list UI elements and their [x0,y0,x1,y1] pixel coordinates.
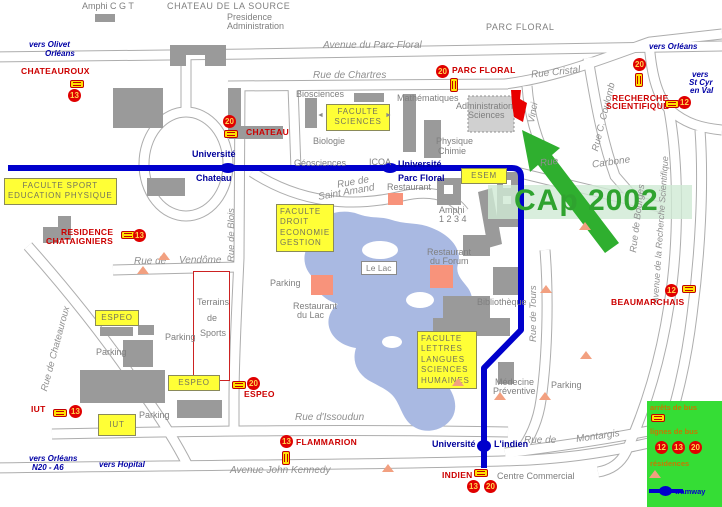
tram-stop-parc-floral-label-bottom: Parc Floral [398,174,445,183]
faculte-lettres-box: FACULTE LETTRES LANGUES SCIENCES HUMAINE… [417,331,477,389]
arrow-left-icon: ◄ [317,112,324,119]
bus-stop-icon [665,100,679,108]
direction-orleans-sw-1: vers Orléans [29,455,77,463]
bus-stop-icon [682,285,696,293]
faculte-droit-line1: FACULTE [280,207,321,216]
bus-stop-indien-label: INDIEN [442,471,473,480]
faculte-lettres-line1: FACULTE [421,334,462,343]
biologie-label: Biologie [313,137,345,146]
direction-stcyr-3: en Val [690,87,713,95]
icoa-label: ICOA [369,158,391,167]
bus-stop-icon [232,381,246,389]
terrains-label-2: de [207,314,217,323]
administration-label: Administration [227,22,284,31]
terrains-label-3: Sports [200,329,226,338]
residence-triangle-icon [540,285,552,293]
street-rue-issoudun: Rue d'Issoudun [295,413,364,423]
bus-line-badge: 13 [69,405,82,418]
bus-stop-chateauroux-label: CHATEAUROUX [21,67,90,76]
le-lac-label: Le Lac [361,261,397,275]
tram-stop-indien-label-right: L'indien [494,440,528,449]
esem-box: ESEM [461,168,507,184]
residence-triangle-icon [539,392,551,400]
bus-stop-recherche-label-2: SCIENTIFIQUE [606,102,669,111]
residence-triangle-icon [158,252,170,260]
bus-stop-chateau-label: CHATEAU [246,128,289,137]
faculte-droit-line2: DROIT [280,217,309,226]
parking-label: Parking [96,348,127,357]
bus-line-badge: 12 [655,441,668,454]
faculte-droit-line3: ECONOMIE [280,228,330,237]
bus-stop-beaumarchais-label: BEAUMARCHAIS [611,298,685,307]
bus-line-badge: 13 [672,441,685,454]
bus-line-badge: 13 [133,229,146,242]
parking-label: Parking [165,333,196,342]
espeo-label: ESPEO [101,313,133,322]
faculte-sciences-box: FACULTE SCIENCES [326,104,390,131]
terrains-de-sports-area [194,272,230,381]
bus-stop-icon [474,469,488,477]
residence-triangle-icon [579,222,591,230]
bus-stop-icon [282,451,290,465]
street-rue-de-blois: Rue de Blois [227,208,237,262]
residence-triangle-icon [494,392,506,400]
tram-stop-icon [659,486,672,496]
direction-orleans-ne: vers Orléans [649,43,697,51]
bus-stop-parc-floral-label: PARC FLORAL [452,66,516,75]
espeo-box-1: ESPEO [95,310,139,326]
iut-label: IUT [109,420,124,429]
faculte-droit-box: FACULTE DROIT ECONOMIE GESTION [276,204,334,252]
residence-triangle-icon [382,464,394,472]
bus-line-badge: 13 [68,89,81,102]
street-rue-de-tours: Rue de Tours [529,285,539,342]
physique-label: Physique [436,137,473,146]
legend-tram-label: tramway [675,487,705,496]
faculte-sciences-line1: FACULTE [337,107,378,116]
arrow-right-icon: ► [385,112,392,119]
admin-sciences-label-2: Sciences [468,111,505,120]
street-avenue-kennedy: Avenue John Kennedy [230,466,330,476]
parking-label: Parking [139,411,170,420]
faculte-sport-box: FACULTE SPORT EDUCATION PHYSIQUE [4,178,117,205]
bus-stop-icon [651,414,665,422]
direction-hopital: vers Hopital [99,461,145,469]
bus-stop-iut-label: IUT [31,405,46,414]
espeo-box-2: ESPEO [168,375,220,391]
esem-label: ESEM [471,171,497,180]
chateau-source-label: CHATEAU DE LA SOURCE [167,2,290,11]
bus-stop-icon [224,130,238,138]
residence-triangle-icon [137,266,149,274]
bus-line-badge: 13 [280,435,293,448]
bus-line-badge: 20 [689,441,702,454]
restaurant-lac-label-2: du Lac [297,311,324,320]
faculte-lettres-line3: LANGUES [421,355,465,364]
centre-commercial-label: Centre Commercial [497,472,575,481]
terrains-label-1: Terrains [197,298,229,307]
map-legend: arrêts de bus lignes de bus 12 13 20 rés… [647,401,722,507]
biosciences-label: Biosciences [296,90,344,99]
amphi-label-2: 1 2 3 4 [439,215,467,224]
legend-bus-lines-label: lignes de bus [650,427,698,436]
faculte-sport-line1: FACULTE SPORT [23,181,98,190]
tram-stop-chateau-marker [220,163,236,173]
parking-label: Parking [551,381,582,390]
bus-stop-espeo-label: ESPEO [244,390,275,399]
parking-label: Parking [270,279,301,288]
tram-stop-parc-floral-label-top: Université [398,160,442,169]
tram-stop-chateau-label-top: Université [192,150,236,159]
tram-stop-indien-label-left: Université [432,440,476,449]
restaurant-label: Restaurant [387,183,431,192]
tram-stop-chateau-label-bottom: Chateau [196,174,232,183]
iut-box: IUT [98,414,136,436]
bibliotheque-label: Bibliothèque [477,298,527,307]
chimie-label: Chimie [438,147,466,156]
bus-line-badge: 13 [467,480,480,493]
residence-triangle-icon [649,470,661,478]
street-avenue-parc-floral: Avenue du Parc Floral [323,41,422,51]
bus-line-badge: 12 [665,284,678,297]
faculte-sport-line2: EDUCATION PHYSIQUE [8,191,113,200]
bus-line-badge: 20 [484,480,497,493]
legend-residences-label: résidences [650,459,689,468]
bus-stop-icon [53,409,67,417]
faculte-lettres-line2: LETTRES [421,344,463,353]
amphi-cgt-label: Amphi C G T [82,2,134,11]
street-rue-vendome-2: Vendôme [179,256,221,266]
bus-stop-icon [635,73,643,87]
residence-triangle-icon [452,378,464,386]
bus-line-badge: 12 [678,96,691,109]
bus-line-badge: 20 [633,58,646,71]
geosciences-label: Géosciences [294,159,346,168]
restaurant-forum-label-2: du Forum [430,257,469,266]
mathematiques-label: Mathématiques [397,94,459,103]
bus-stop-icon [450,78,458,92]
tram-stop-indien-marker [477,440,491,452]
bus-line-badge: 20 [223,115,236,128]
bus-stop-residence-label-2: CHATAIGNIERS [46,237,113,246]
campus-map: Amphi C G T CHATEAU DE LA SOURCE Preside… [0,0,722,507]
espeo-label: ESPEO [178,378,210,387]
direction-olivet-2: Orléans [45,50,75,58]
faculte-sciences-line2: SCIENCES [334,117,381,126]
residence-triangle-icon [580,351,592,359]
legend-bus-stop-label: arrêts de bus [650,403,697,412]
faculte-lettres-line4: SCIENCES [421,365,468,374]
faculte-droit-line4: GESTION [280,238,322,247]
parc-floral-area-label: PARC FLORAL [486,23,554,32]
bus-stop-flammarion-label: FLAMMARION [296,438,357,447]
bus-line-badge: 20 [436,65,449,78]
street-rue-de-chartres: Rue de Chartres [313,71,386,81]
direction-orleans-sw-2: N20 - A6 [32,464,64,472]
street-rue-montargis-1: Rue de [524,436,556,446]
bus-stop-icon [70,80,84,88]
direction-olivet-1: vers Olivet [29,41,70,49]
cap2002-title: CAp 2002 [514,184,659,218]
